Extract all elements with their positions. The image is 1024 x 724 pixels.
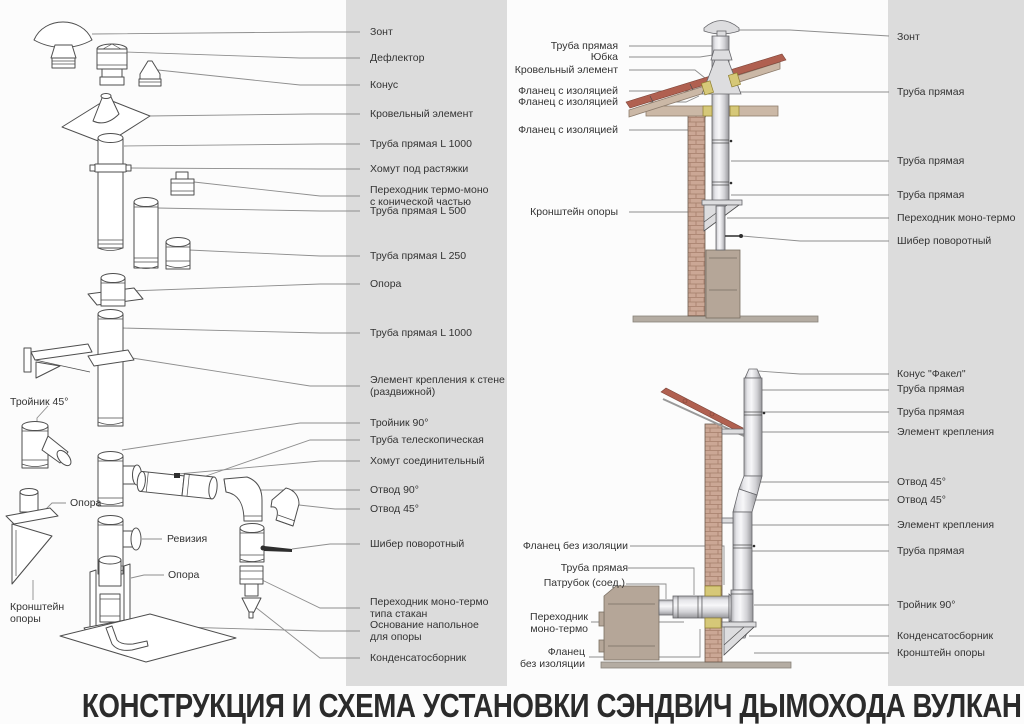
joint-clamp-part — [174, 473, 180, 478]
part-label-pipe-250: Труба прямая L 250 — [370, 250, 466, 262]
boiler — [599, 586, 659, 660]
bs-label-elbow-45b: Отвод 45° — [897, 494, 946, 506]
part-label-roof-element: Кровельный элемент — [370, 108, 473, 120]
straight-pipe-1000b-part — [98, 310, 123, 427]
bs-label-pipe-2: Труба прямая — [897, 406, 964, 418]
support-plate-part — [88, 274, 143, 307]
page-title: КОНСТРУКЦИЯ И СХЕМА УСТАНОВКИ СЭНДВИЧ ДЫ… — [82, 687, 942, 724]
wall-clamp-2 — [722, 518, 733, 523]
ts-label-mono-adapter: Переходник моно-термо — [897, 212, 1016, 224]
damper-handle — [725, 234, 743, 238]
part-label-telescopic: Труба телескопическая — [370, 434, 484, 446]
bs-label-elbow-45a: Отвод 45° — [897, 476, 946, 488]
deflector-part — [97, 44, 127, 85]
cone-part — [139, 61, 161, 86]
ceiling-flange-1 — [703, 106, 712, 116]
part-label-elbow-90: Отвод 90° — [370, 484, 419, 496]
bs-label-mount-2: Элемент крепления — [897, 519, 994, 531]
scheme-external-wall — [589, 369, 889, 668]
part-label-guy-clamp: Хомут под растяжки — [370, 163, 468, 175]
floor-base-part — [60, 614, 236, 662]
ground — [601, 662, 791, 668]
elbow-90-part — [224, 477, 262, 521]
ts-label-pipe-2: Труба прямая — [897, 155, 964, 167]
bs-label-flange-top: Фланец без изоляции — [480, 540, 628, 552]
wall-clamp-1 — [722, 429, 744, 434]
part-label-damper: Шибер поворотный — [370, 538, 464, 550]
bs-label-mount-1: Элемент крепления — [897, 426, 994, 438]
elbow-45-part — [271, 488, 299, 526]
tee-45-part — [22, 422, 74, 469]
inline-label-support-2: Опора — [168, 569, 199, 581]
part-label-pipe-500: Труба прямая L 500 — [370, 205, 466, 217]
part-label-pipe-1000b: Труба прямая L 1000 — [370, 327, 472, 339]
part-label-elbow-45: Отвод 45° — [370, 503, 419, 515]
bs-label-nozzle: Патрубок (соед.) — [477, 577, 625, 589]
straight-pipe-1000-part — [98, 134, 123, 251]
skirt — [711, 50, 732, 60]
ts-label-damper: Шибер поворотный — [897, 235, 991, 247]
bs-label-pipe-1: Труба прямая — [897, 383, 964, 395]
bs-label-flare-cone: Конус "Факел" — [897, 368, 966, 380]
wall-flange-bottom — [705, 618, 721, 628]
exploded-view — [6, 22, 360, 662]
part-label-umbrella: Зонт — [370, 26, 393, 38]
stove — [706, 250, 740, 318]
straight-pipe-250-part — [166, 238, 190, 270]
inline-label-bracket: Кронштейн опоры — [10, 601, 64, 625]
ts-label-roof-element: Кровельный элемент — [470, 64, 618, 76]
part-label-support: Опора — [370, 278, 401, 290]
vertical-run — [731, 369, 765, 638]
umbrella-cap-part — [34, 22, 92, 68]
thermo-mono-adapter-part — [171, 172, 194, 195]
brick-wall — [688, 114, 705, 316]
inline-label-tee-45: Тройник 45° — [10, 396, 68, 408]
roof-sheet — [626, 54, 786, 108]
bs-label-pipe-3: Труба прямая — [897, 545, 964, 557]
bs-label-pipe: Труба прямая — [480, 562, 628, 574]
damper-part — [240, 524, 292, 563]
tee-90-part — [98, 452, 142, 507]
glass-adapter-part — [240, 566, 263, 596]
straight-pipe-500-part — [134, 198, 158, 269]
condensate-collector-part — [242, 598, 261, 618]
bs-label-condensate: Конденсатосборник — [897, 630, 993, 642]
bs-label-mono-adapter: Переходник моно-термо — [440, 611, 588, 635]
umbrella-cap — [704, 21, 739, 37]
support-bracket-part — [6, 489, 58, 585]
scheme-through-roof — [626, 21, 889, 323]
ts-label-flange-3: Фланец с изоляцией — [470, 124, 618, 136]
part-label-cone: Конус — [370, 79, 398, 91]
inline-label-support-1: Опора — [70, 497, 101, 509]
inline-label-revision: Ревизия — [167, 533, 207, 545]
ts-label-pipe-3: Труба прямая — [897, 189, 964, 201]
bs-label-flange-bottom: Фланец без изоляции — [437, 646, 585, 670]
part-label-deflector: Дефлектор — [370, 52, 424, 64]
part-label-tee-90: Тройник 90° — [370, 417, 428, 429]
part-label-joint-clamp: Хомут соединительный — [370, 455, 485, 467]
ts-label-bracket: Кронштейн опоры — [470, 206, 618, 218]
ts-label-umbrella: Зонт — [897, 31, 920, 43]
ceiling-flange-2 — [730, 106, 739, 116]
chimney-diagram-page: Зонт Дефлектор Конус Кровельный элемент … — [0, 0, 1024, 724]
ts-label-pipe-1: Труба прямая — [897, 86, 964, 98]
ts-label-skirt: Юбка — [470, 51, 618, 63]
wall-flange-top — [705, 586, 721, 596]
guy-wire-clamp-part — [90, 164, 131, 172]
bs-label-bracket: Кронштейн опоры — [897, 647, 985, 659]
part-label-wall-mount: Элемент крепления к стене (раздвижной) — [370, 374, 505, 398]
ts-label-flange-2: Фланец с изоляцией — [470, 96, 618, 108]
bottom-bracket — [722, 622, 756, 655]
mono-adapter-pipe — [716, 206, 725, 250]
bs-label-tee-90: Тройник 90° — [897, 599, 955, 611]
part-label-pipe-1000: Труба прямая L 1000 — [370, 138, 472, 150]
